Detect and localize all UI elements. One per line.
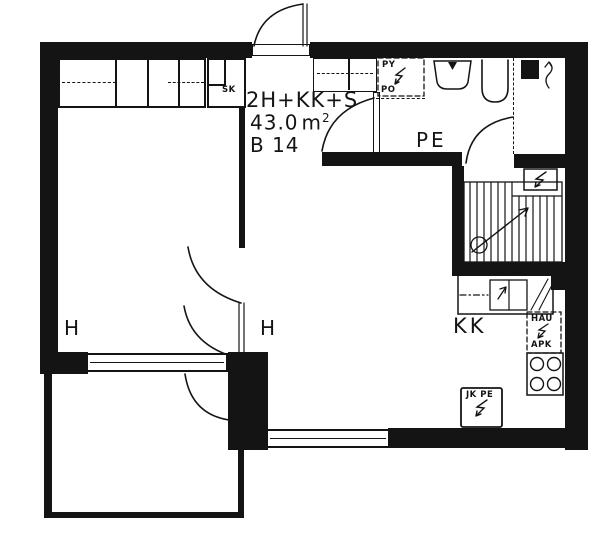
washer-reservation-label-top: PY (382, 61, 395, 70)
stove-burner (531, 378, 544, 391)
bedroom-door-arc (188, 247, 241, 303)
counter-drainer-lines (531, 279, 553, 310)
kitchen-label: KK (453, 316, 487, 337)
lightning-icon (395, 68, 405, 84)
entrance-door-arc (254, 4, 303, 46)
washer-reservation-label-bottom: PO (381, 86, 395, 95)
washbasin-tap-icon (448, 62, 457, 70)
sauna-heater-icon (521, 60, 539, 79)
dishwasher-label-bottom: APK (531, 341, 552, 350)
stove-burner (531, 358, 544, 371)
bathroom-door-arc (466, 117, 513, 163)
bedroom-label: H (64, 318, 80, 338)
stove-burner (548, 358, 561, 371)
plan-linework (0, 0, 600, 538)
apartment-type-label: 2H+KK+S (246, 90, 358, 111)
fridge-freezer-label: JK PE (466, 391, 493, 400)
lightning-icon (535, 172, 546, 187)
vent-icon (545, 62, 552, 88)
lightning-icon (538, 324, 548, 338)
bathroom-label: PE (416, 130, 447, 150)
area-unit: m (302, 111, 322, 135)
stove-burner (548, 378, 561, 391)
balcony-door-arc (185, 374, 229, 420)
area-exponent: 2 (322, 111, 331, 125)
kitchen-flue-block (551, 272, 566, 290)
stairs-right-flight (519, 196, 554, 261)
area-number: 43.0 (250, 111, 299, 135)
entrance-door-leaf (303, 4, 307, 46)
living-room-label: H (260, 318, 276, 338)
bedroom-door-leaf (239, 303, 244, 352)
floor-plan: SK (0, 0, 600, 538)
toilet-icon (482, 60, 508, 102)
apartment-area-label: 43.0 m2 (250, 112, 331, 133)
balcony-door-leaf (229, 374, 233, 418)
apartment-unit-label: B 14 (250, 135, 300, 155)
dishwasher-label-top: HAU (531, 315, 553, 324)
bedroom-second-door-arc (184, 306, 238, 358)
kitchen-counter (458, 275, 553, 314)
lightning-icon (476, 400, 487, 416)
tap-arrow-icon (498, 287, 506, 299)
